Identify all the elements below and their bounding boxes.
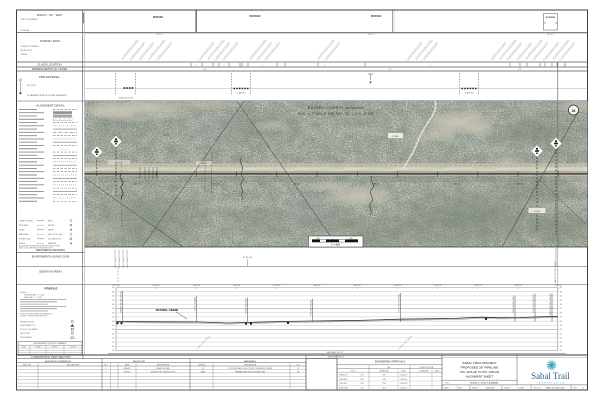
svg-text:4315+00: 4315+00 — [434, 285, 441, 287]
svg-text:REV:: REV: — [573, 387, 577, 389]
svg-text:200: 200 — [560, 346, 563, 348]
svg-text:PL ROD CROSSING: PL ROD CROSSING — [20, 329, 38, 331]
svg-text:ALIGNMENT SHEET: ALIGNMENT SHEET — [466, 374, 493, 378]
svg-text:280: 280 — [112, 312, 115, 314]
svg-text:1: 1 — [325, 65, 326, 67]
svg-text:DESCRIPTION: DESCRIPTION — [244, 364, 257, 366]
svg-text:RUSSELL COUNTY, ALABAMA: RUSSELL COUNTY, ALABAMA — [308, 106, 365, 110]
svg-text:T R A N S M I S S I O N: T R A N S M I S S I O N — [537, 381, 565, 384]
svg-text:0: 0 — [333, 238, 334, 240]
svg-text:ITEM NO.: ITEM NO. — [198, 364, 206, 366]
svg-text:240: 240 — [112, 329, 115, 331]
svg-text:270: 270 — [560, 317, 563, 319]
svg-text:36 (.XXX): 36 (.XXX) — [27, 85, 36, 87]
svg-text:04/04/2012: 04/04/2012 — [400, 379, 408, 381]
svg-text:SCALE:: SCALE: — [20, 291, 27, 294]
svg-text:4295+00: 4295+00 — [273, 285, 280, 287]
svg-text:MINIMUM DEPTH OF COVER: MINIMUM DEPTH OF COVER — [32, 67, 68, 71]
svg-text:SEC. 4, T-16N, R-30E SEC. 33,: SEC. 4, T-16N, R-30E SEC. 33, T-17N, R-3… — [298, 112, 374, 116]
svg-text:SURVEY DATA: SURVEY DATA — [40, 39, 61, 43]
svg-text:1: 1 — [224, 65, 225, 67]
svg-text:RUSSELL COUNTY, ALABAMA: RUSSELL COUNTY, ALABAMA — [470, 381, 499, 384]
svg-text:CO. RD. 22 (DIRT): CO. RD. 22 (DIRT) — [194, 297, 196, 312]
svg-text:GUY ANCHOR: GUY ANCHOR — [48, 238, 61, 241]
svg-text:PROCESSED: PROCESSED — [20, 337, 33, 339]
svg-text:290: 290 — [560, 308, 563, 310]
svg-text:BORDEN: BORDEN — [250, 15, 261, 18]
svg-text:1: 1 — [262, 65, 263, 67]
svg-text:230: 230 — [112, 333, 115, 335]
svg-text:1" = 600': 1" = 600' — [331, 244, 341, 247]
svg-text:TRACT NUMBERS: TRACT NUMBERS — [21, 18, 39, 21]
svg-text:SENSITIVE AREAS: SENSITIVE AREAS — [39, 270, 62, 274]
svg-text:SM-PL-SO-70-027-000: SM-PL-SO-70-027-000 — [546, 387, 564, 389]
svg-text:DEPTH: DEPTH — [52, 346, 57, 348]
svg-text:POWERLINE: POWERLINE — [19, 239, 31, 241]
svg-text:4310+00: 4310+00 — [394, 285, 401, 287]
svg-text:2017: 2017 — [458, 387, 462, 389]
svg-text:1: 1 — [540, 65, 541, 67]
svg-text:P-510: P-510 — [534, 211, 541, 213]
svg-text:290: 290 — [112, 308, 115, 310]
svg-text:250: 250 — [560, 325, 563, 327]
svg-text:NOTES: NOTES — [70, 346, 75, 348]
svg-text:210: 210 — [112, 342, 115, 344]
svg-text:REVISIONS: REVISIONS — [133, 361, 145, 363]
svg-text:SIZE: SIZE — [22, 346, 25, 348]
svg-text:MILE POST (MP): MILE POST (MP) — [48, 234, 63, 236]
svg-text:300: 300 — [560, 304, 563, 306]
svg-text:1: 1 — [196, 65, 197, 67]
svg-text:PIPELINE: PIPELINE — [21, 30, 31, 32]
svg-text:04/04/2012: 04/04/2012 — [400, 374, 408, 376]
svg-text:4290+00: 4290+00 — [212, 184, 219, 186]
svg-text:PERMITTED (P): PERMITTED (P) — [20, 321, 34, 323]
svg-text:BORDEN: BORDEN — [546, 17, 556, 19]
svg-text:RIGHT - OF - WAY: RIGHT - OF - WAY — [37, 13, 62, 17]
svg-text:ENVIRONMENTAL SURVEY DATA: ENVIRONMENTAL SURVEY DATA — [32, 256, 70, 259]
svg-text:4325+00: 4325+00 — [514, 285, 521, 287]
svg-text:DESCRIPTION: DESCRIPTION — [157, 364, 170, 366]
svg-text:REFERENCE DRAWING: REFERENCE DRAWING — [36, 248, 65, 252]
svg-text:4285+00: 4285+00 — [193, 285, 200, 287]
svg-text:SCALE:: SCALE: — [504, 386, 511, 389]
svg-text:4320+00: 4320+00 — [452, 184, 459, 186]
svg-text:38+2: 38+2 — [202, 163, 206, 165]
svg-text:0: 0 — [583, 387, 584, 389]
svg-text:POWER LINE ESMT: POWER LINE ESMT — [245, 299, 247, 315]
svg-text:340: 340 — [560, 287, 563, 289]
svg-text:330: 330 — [560, 291, 563, 293]
svg-text:02/19/2016: 02/19/2016 — [400, 383, 408, 385]
svg-text:4290+00: 4290+00 — [233, 285, 240, 287]
svg-text:1: 1 — [564, 65, 565, 67]
svg-text:DESIGNED:: DESIGNED: — [339, 379, 348, 381]
svg-text:SHEET:: SHEET: — [472, 387, 478, 389]
svg-text:320: 320 — [560, 296, 563, 298]
svg-text:MILEPOSTS: MILEPOSTS — [21, 50, 33, 52]
svg-text:+ + + + +: + + + + + — [61, 149, 71, 151]
svg-text:300: 300 — [112, 304, 115, 306]
svg-text:04/04/12: 04/04/12 — [124, 368, 131, 370]
svg-text:CHECKED:: CHECKED: — [339, 383, 348, 385]
svg-text:ISSUED FOR BID: ISSUED FOR BID — [156, 368, 170, 370]
svg-text:BK 4275+00.0: BK 4275+00.0 — [119, 258, 121, 268]
svg-text:34: 34 — [572, 109, 576, 113]
svg-text:METER: METER — [48, 225, 55, 227]
svg-text:ST RD 169: ST RD 169 — [243, 257, 252, 259]
svg-text:JRW: JRW — [360, 379, 364, 381]
svg-text:250: 250 — [112, 325, 115, 327]
svg-text:4330+00: 4330+00 — [516, 184, 523, 186]
svg-text:3'-0": 3'-0" — [203, 69, 207, 71]
svg-text:NO PAVEMENT HERE UNTOUCHED PER: NO PAVEMENT HERE UNTOUCHED PER MARKET — [27, 94, 67, 97]
svg-text:VALVE: VALVE — [48, 229, 55, 232]
svg-text:BK 4275+00.0: BK 4275+00.0 — [115, 258, 117, 268]
svg-text:MP 80.9: MP 80.9 — [156, 34, 163, 36]
svg-text:Sabal Trail: Sabal Trail — [531, 371, 570, 381]
svg-text:340: 340 — [112, 287, 115, 289]
svg-text:MP 81.4: MP 81.4 — [368, 34, 375, 36]
svg-text:220: 220 — [112, 338, 115, 340]
svg-text:JRW: JRW — [382, 379, 386, 381]
svg-text:WELL: WELL — [48, 220, 53, 222]
svg-text:MATCH LINE STA. 4275+00: MATCH LINE STA. 4275+00 — [119, 291, 122, 312]
svg-text:1" = 600': 1" = 600' — [517, 387, 525, 389]
svg-text:4275+00: 4275+00 — [112, 285, 119, 287]
svg-text:4275+00: 4275+00 — [115, 162, 122, 164]
svg-text:3'-0": 3'-0" — [518, 69, 522, 71]
svg-text:SABAL TRAIL PROJECT: SABAL TRAIL PROJECT — [462, 361, 497, 365]
svg-text:1: 1 — [106, 371, 107, 373]
svg-text:260: 260 — [112, 321, 115, 323]
svg-text:HYDROSTATIC TEST SECTION: HYDROSTATIC TEST SECTION — [31, 355, 70, 359]
svg-text:FOREIGN PIPELINE: FOREIGN PIPELINE — [310, 299, 312, 316]
svg-text:TDB: TDB — [360, 383, 363, 385]
svg-text:GAS PIPELINE XING: GAS PIPELINE XING — [512, 296, 515, 313]
svg-text:TREES: TREES — [21, 54, 28, 56]
svg-text:200: 200 — [112, 346, 115, 348]
svg-text:240: 240 — [560, 329, 563, 331]
svg-text:CLASS 300: CLASS 300 — [237, 92, 246, 95]
svg-text:600: 600 — [350, 238, 353, 240]
svg-text:4300+00: 4300+00 — [292, 184, 299, 186]
svg-text:TEMPORARY (T): TEMPORARY (T) — [20, 324, 35, 327]
svg-text:P-503: P-503 — [163, 134, 170, 136]
svg-text:CLASS 150 (TYP.): CLASS 150 (TYP.) — [118, 97, 133, 100]
svg-text:190: 190 — [560, 350, 563, 352]
svg-text:PROPOSED 36" PIPELINE: PROPOSED 36" PIPELINE — [461, 365, 499, 369]
svg-text:SEE SHEET NO. 37: SEE SHEET NO. 37 — [327, 352, 343, 354]
svg-text:SURVEY COMPANY: SURVEY COMPANY — [21, 45, 40, 48]
svg-text:ALIGNMENT DETAIL: ALIGNMENT DETAIL — [36, 104, 65, 108]
svg-text:OF ANY FOREIGN PIPELINE (TYP.): OF ANY FOREIGN PIPELINE (TYP.) — [20, 315, 48, 318]
svg-text:ISSUED FOR CONSTRUCTION: ISSUED FOR CONSTRUCTION — [151, 371, 176, 373]
svg-text:310: 310 — [112, 300, 115, 302]
svg-text:0: 0 — [106, 368, 107, 370]
svg-text:4305+00: 4305+00 — [354, 285, 361, 287]
svg-text:PROFILE: PROFILE — [44, 286, 57, 290]
svg-text:1: 1 — [430, 65, 431, 67]
svg-text:4330+00: 4330+00 — [555, 285, 562, 287]
svg-text:LF: LF — [297, 368, 299, 370]
svg-text:310: 310 — [560, 300, 563, 302]
svg-text:REFERENCE DRAWINGS: REFERENCE DRAWINGS — [45, 360, 72, 363]
svg-text:LOC:: LOC: — [445, 382, 450, 384]
svg-text:MP 81.6: MP 81.6 — [547, 34, 554, 36]
svg-text:WETLAND: WETLAND — [19, 224, 29, 227]
svg-text:280: 280 — [560, 312, 563, 314]
svg-text:230: 230 — [560, 333, 563, 335]
svg-text:BORDEN: BORDEN — [153, 16, 164, 19]
svg-text:BORDEN: BORDEN — [371, 15, 382, 18]
svg-text:DWG. NO.: DWG. NO. — [533, 387, 542, 389]
svg-text:36 OF 302: 36 OF 302 — [486, 387, 495, 389]
svg-text:YEAR:: YEAR: — [444, 386, 450, 389]
svg-text:4280+00: 4280+00 — [153, 285, 160, 287]
svg-text:MATERIALS: MATERIALS — [244, 360, 257, 363]
svg-text:02/19/16: 02/19/16 — [124, 371, 131, 373]
svg-text:P-505: P-505 — [393, 136, 400, 138]
svg-text:CREEK / RIVER: CREEK / RIVER — [19, 220, 34, 222]
svg-text:STA. 4275+00 TO STA. 4350+00: STA. 4275+00 TO STA. 4350+00 — [460, 370, 500, 374]
svg-text:SLB: SLB — [382, 388, 385, 390]
svg-text:MATCH LINE STA. 4350+00: MATCH LINE STA. 4350+00 — [549, 294, 552, 315]
svg-text:PIPE MATERIAL: PIPE MATERIAL — [39, 75, 60, 79]
svg-text:CLASS 300: CLASS 300 — [465, 92, 474, 95]
svg-text:3'-0": 3'-0" — [388, 69, 392, 71]
svg-text:4300+00: 4300+00 — [313, 285, 320, 287]
svg-text:BK 4275+00.0: BK 4275+00.0 — [127, 258, 129, 268]
svg-text:600: 600 — [317, 238, 320, 240]
svg-text:330: 330 — [112, 291, 115, 293]
svg-text:4320+00: 4320+00 — [474, 285, 481, 287]
svg-text:270: 270 — [112, 317, 115, 319]
svg-text:ST. RD. 169 CROSSING: ST. RD. 169 CROSSING — [399, 293, 401, 312]
svg-text:CLASS LOCATION: CLASS LOCATION — [37, 63, 61, 67]
svg-text:BK 4275+00.0: BK 4275+00.0 — [123, 258, 125, 268]
svg-text:4280+00: 4280+00 — [132, 184, 139, 186]
svg-text:PROP. 36 IN. PIPELINE: PROP. 36 IN. PIPELINE — [533, 294, 535, 313]
svg-text:MATCH LINE STA. 4350+00: MATCH LINE STA. 4350+00 — [554, 262, 557, 283]
svg-text:02/19/2016: 02/19/2016 — [400, 388, 408, 390]
svg-text:210: 210 — [560, 342, 563, 344]
svg-text:190: 190 — [112, 350, 115, 352]
svg-text:RAILROAD: RAILROAD — [19, 233, 29, 236]
svg-text:TDB: TDB — [382, 383, 385, 385]
svg-text:220: 220 — [560, 338, 563, 340]
svg-text:260: 260 — [560, 321, 563, 323]
svg-text:SECTIONS: SECTIONS — [20, 333, 30, 335]
svg-text:ENGINEERING APPROVALS: ENGINEERING APPROVALS — [375, 360, 406, 363]
svg-text:320: 320 — [112, 296, 115, 298]
svg-text:SLB: SLB — [360, 388, 363, 390]
svg-text:ROAD: ROAD — [19, 229, 25, 232]
svg-text:NATURAL GRADE: NATURAL GRADE — [156, 308, 179, 312]
svg-text:VERTICAL: 1" = 600': VERTICAL: 1" = 600' — [24, 296, 42, 299]
